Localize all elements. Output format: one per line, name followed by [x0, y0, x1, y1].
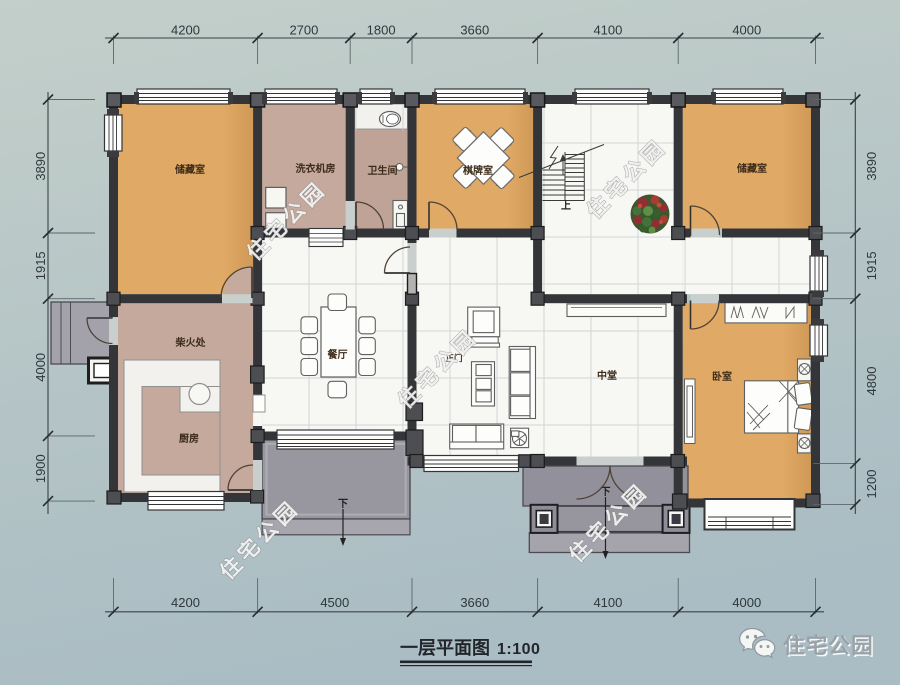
svg-text:下: 下	[338, 498, 348, 510]
svg-text:上: 上	[561, 199, 571, 212]
svg-text:柴火处: 柴火处	[175, 336, 207, 349]
svg-text:1800: 1800	[367, 23, 396, 38]
svg-text:储藏室: 储藏室	[174, 163, 205, 176]
svg-text:3660: 3660	[460, 595, 489, 610]
svg-text:4200: 4200	[171, 595, 200, 610]
svg-text:3890: 3890	[864, 152, 879, 181]
svg-text:4000: 4000	[732, 23, 761, 38]
svg-text:4500: 4500	[320, 595, 349, 610]
svg-text:1900: 1900	[33, 454, 48, 483]
svg-text:4800: 4800	[864, 367, 879, 396]
svg-text:3890: 3890	[33, 152, 48, 181]
svg-text:4200: 4200	[171, 23, 200, 38]
svg-text:卫生间: 卫生间	[368, 164, 398, 177]
svg-text:住宅公园: 住宅公园	[783, 633, 874, 658]
svg-text:4100: 4100	[593, 23, 622, 38]
svg-text:1915: 1915	[864, 251, 879, 280]
svg-text:1:100: 1:100	[497, 641, 540, 658]
svg-text:卧室: 卧室	[712, 370, 732, 383]
svg-text:餐厅: 餐厅	[327, 348, 348, 361]
svg-text:4000: 4000	[732, 595, 761, 610]
svg-text:中堂: 中堂	[597, 369, 617, 382]
svg-text:1915: 1915	[33, 251, 48, 280]
svg-text:厨房: 厨房	[179, 432, 199, 445]
svg-text:1200: 1200	[864, 470, 879, 499]
svg-text:4000: 4000	[33, 353, 48, 382]
svg-text:棋牌室: 棋牌室	[462, 164, 493, 177]
svg-text:洗衣机房: 洗衣机房	[296, 162, 336, 175]
svg-text:储藏室: 储藏室	[736, 162, 767, 175]
svg-text:3660: 3660	[460, 23, 489, 38]
svg-text:2700: 2700	[289, 23, 318, 38]
svg-text:一层平面图: 一层平面图	[400, 638, 490, 658]
svg-text:4100: 4100	[593, 595, 622, 610]
